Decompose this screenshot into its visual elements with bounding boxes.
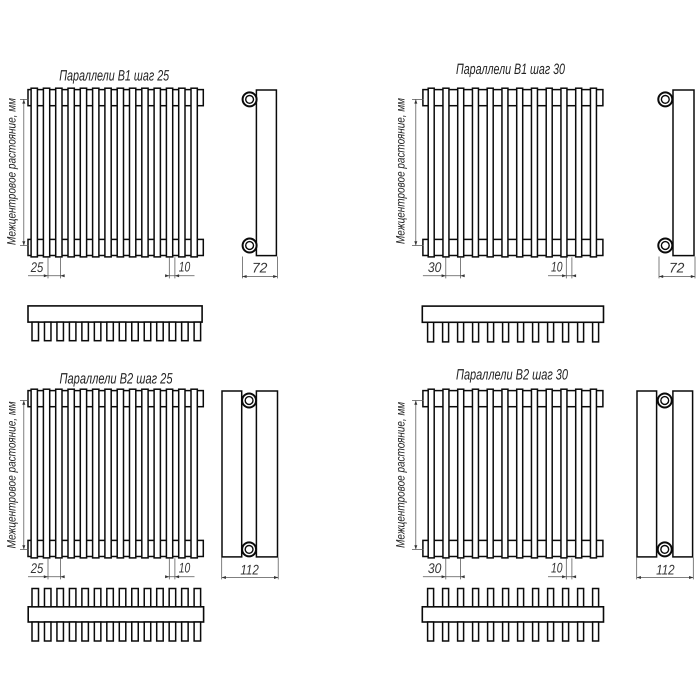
svg-text:30: 30 [428,259,442,275]
svg-text:10: 10 [551,560,563,576]
svg-text:112: 112 [240,561,259,577]
svg-text:72: 72 [669,260,685,276]
svg-text:25: 25 [30,560,43,576]
svg-text:Межцентровое растояние, мм: Межцентровое растояние, мм [4,401,18,549]
svg-text:Межцентровое растояние, мм: Межцентровое растояние, мм [394,401,408,548]
svg-text:30: 30 [428,560,442,576]
svg-text:Параллели В1 шаг 25: Параллели В1 шаг 25 [59,68,169,85]
svg-text:10: 10 [179,259,191,275]
svg-text:112: 112 [656,561,675,577]
svg-text:10: 10 [551,259,563,275]
svg-text:72: 72 [252,260,268,276]
svg-text:Параллели В2 шаг 30: Параллели В2 шаг 30 [456,367,568,384]
svg-text:Параллели В1 шаг 30: Параллели В1 шаг 30 [456,61,565,78]
svg-text:Параллели В2 шаг 25: Параллели В2 шаг 25 [60,371,173,388]
svg-text:Межцентровое растояние, мм: Межцентровое растояние, мм [4,97,18,245]
svg-text:25: 25 [30,259,43,275]
svg-text:Межцентровое растояние, мм: Межцентровое растояние, мм [394,97,408,244]
svg-text:10: 10 [179,560,191,576]
